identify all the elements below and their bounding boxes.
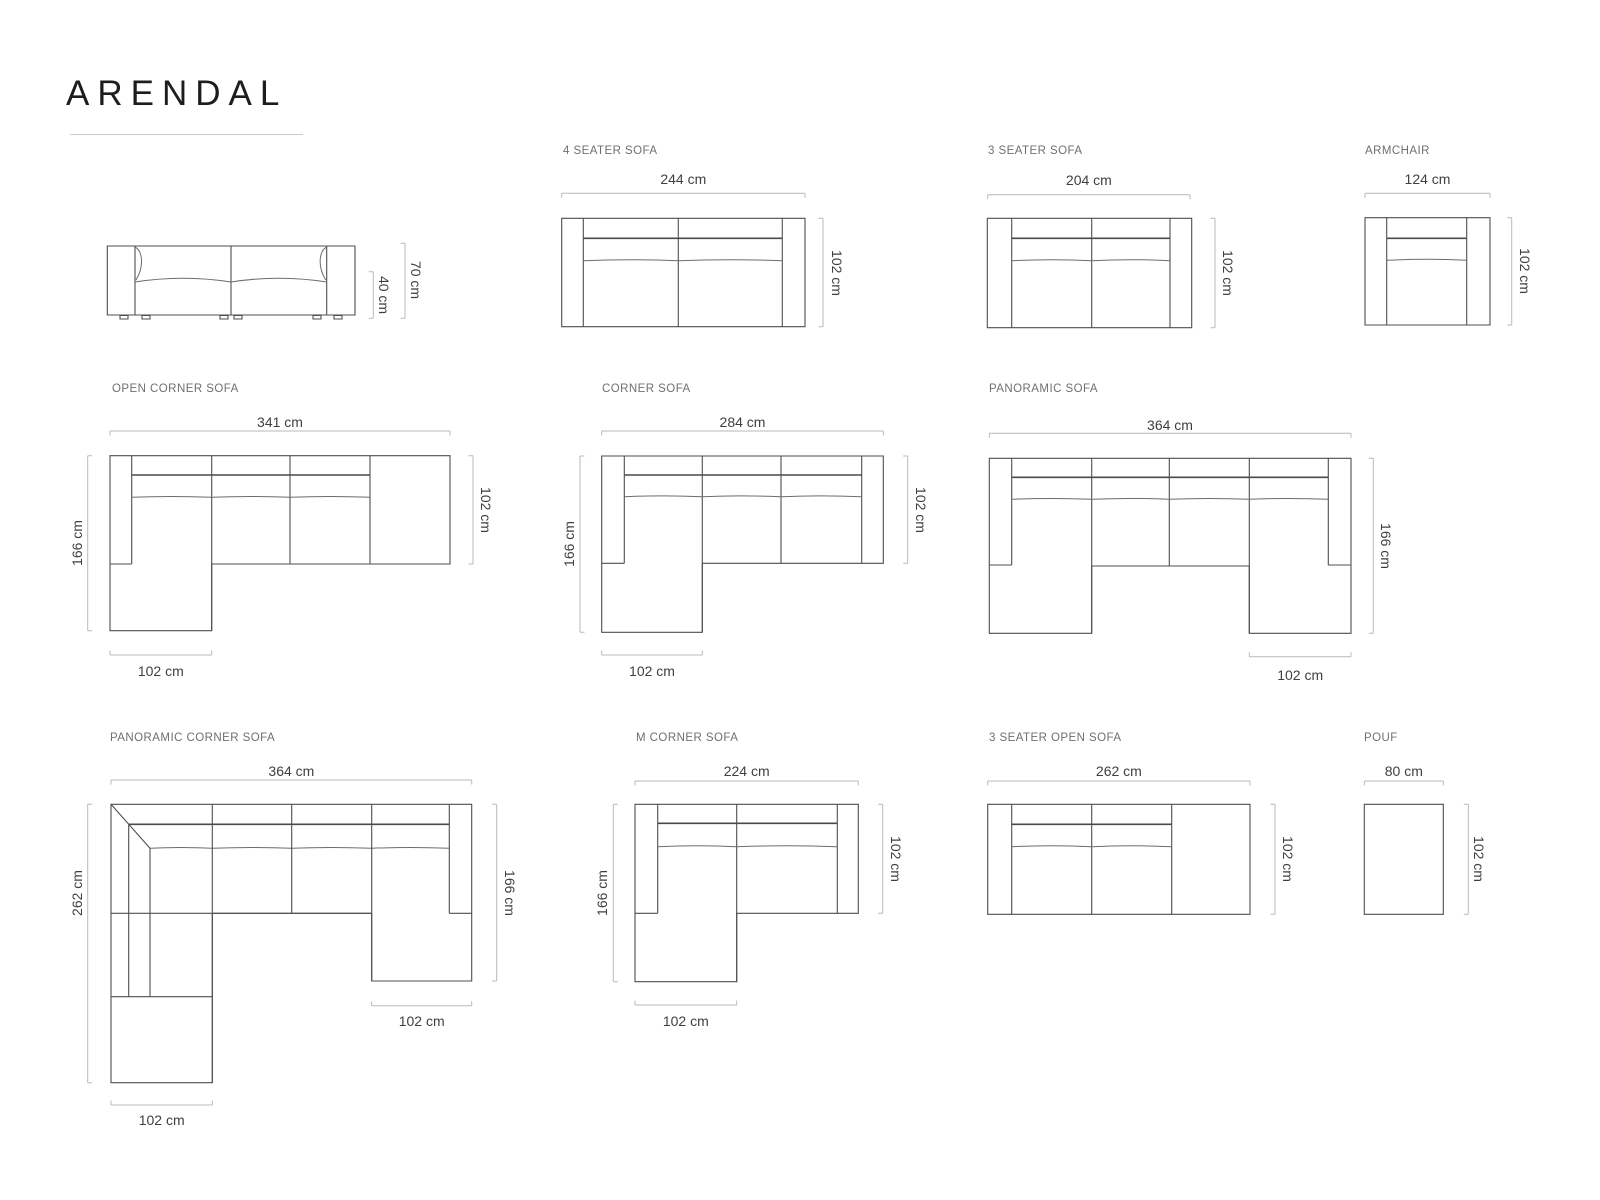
panoramic-sofa-figure: PANORAMIC SOFA 364 cm 166 cm 102 cm: [940, 370, 1400, 690]
dim-width-label: 364 cm: [268, 763, 314, 779]
corner-sofa-figure: CORNER SOFA 284 cm 166 cm 102 cm 102 cm: [540, 370, 940, 680]
dim-width-label: 364 cm: [1147, 417, 1193, 433]
dim-depth-label: 102 cm: [888, 836, 904, 882]
page-title: ARENDAL: [66, 74, 287, 114]
dim-total-depth-label: 166 cm: [561, 521, 577, 567]
3-seater-sofa-figure: 3 SEATER SOFA 204 cm 102 cm: [950, 135, 1240, 335]
4-seater-sofa-figure: 4 SEATER SOFA 244 cm 102 cm: [540, 135, 840, 335]
dim-width-label: 124 cm: [1405, 171, 1451, 187]
dim-chaise-width-label: 102 cm: [629, 663, 675, 679]
dim-right-depth-label: 166 cm: [502, 870, 518, 916]
3-seater-open-sofa-drawing: [940, 705, 1310, 935]
spec-sheet: ARENDAL 40 cm 70 cm 4 SEATER SOFA 244 cm…: [0, 0, 1600, 1200]
dim-depth-label: 102 cm: [478, 487, 494, 533]
armchair-drawing: [1320, 135, 1530, 335]
title-underline: [70, 134, 303, 135]
dim-total-depth-label: 166 cm: [69, 520, 85, 566]
m-corner-sofa-drawing: [560, 705, 910, 1035]
dim-width-label: 341 cm: [257, 414, 303, 430]
dim-width-label: 204 cm: [1066, 172, 1112, 188]
dim-depth-label: 102 cm: [913, 487, 929, 533]
dim-depth-label: 102 cm: [1517, 248, 1533, 294]
dim-depth-label: 102 cm: [1280, 836, 1296, 882]
armchair-figure: ARMCHAIR 124 cm 102 cm: [1320, 135, 1530, 335]
side-view-sofa-figure: 40 cm 70 cm: [100, 235, 430, 330]
4-seater-sofa-drawing: [540, 135, 840, 335]
dim-chaise-width-label: 102 cm: [1277, 667, 1323, 683]
dim-depth-label: 102 cm: [829, 250, 845, 296]
dim-total-height-label: 70 cm: [408, 261, 424, 299]
dim-chaise-width-label: 102 cm: [138, 663, 184, 679]
pouf-drawing: [1300, 705, 1530, 935]
3-seater-sofa-drawing: [950, 135, 1240, 335]
dim-width-label: 262 cm: [1096, 763, 1142, 779]
dim-chaise-width-label: 102 cm: [663, 1013, 709, 1029]
panoramic-corner-sofa-figure: PANORAMIC CORNER SOFA 364 cm 262 cm 166 …: [55, 705, 535, 1135]
dim-width-label: 244 cm: [660, 171, 706, 187]
dim-width-label: 284 cm: [720, 414, 766, 430]
dim-left-depth-label: 262 cm: [69, 870, 85, 916]
dim-total-depth-label: 166 cm: [1378, 523, 1394, 569]
dim-width-label: 224 cm: [724, 763, 770, 779]
open-corner-sofa-figure: OPEN CORNER SOFA 341 cm 166 cm 102 cm 10…: [60, 370, 500, 680]
dim-depth-label: 102 cm: [1220, 250, 1236, 296]
pouf-figure: POUF 80 cm 102 cm: [1300, 705, 1530, 935]
3-seater-open-sofa-figure: 3 SEATER OPEN SOFA 262 cm 102 cm: [940, 705, 1310, 935]
dim-chaise-width-right-label: 102 cm: [399, 1013, 445, 1029]
dim-chaise-width-left-label: 102 cm: [139, 1112, 185, 1128]
dim-total-depth-label: 166 cm: [594, 870, 610, 916]
dim-width-label: 80 cm: [1385, 763, 1423, 779]
dim-depth-label: 102 cm: [1471, 836, 1487, 882]
dim-seat-height-label: 40 cm: [376, 276, 392, 314]
m-corner-sofa-figure: M CORNER SOFA 224 cm 166 cm 102 cm 102 c…: [560, 705, 910, 1035]
